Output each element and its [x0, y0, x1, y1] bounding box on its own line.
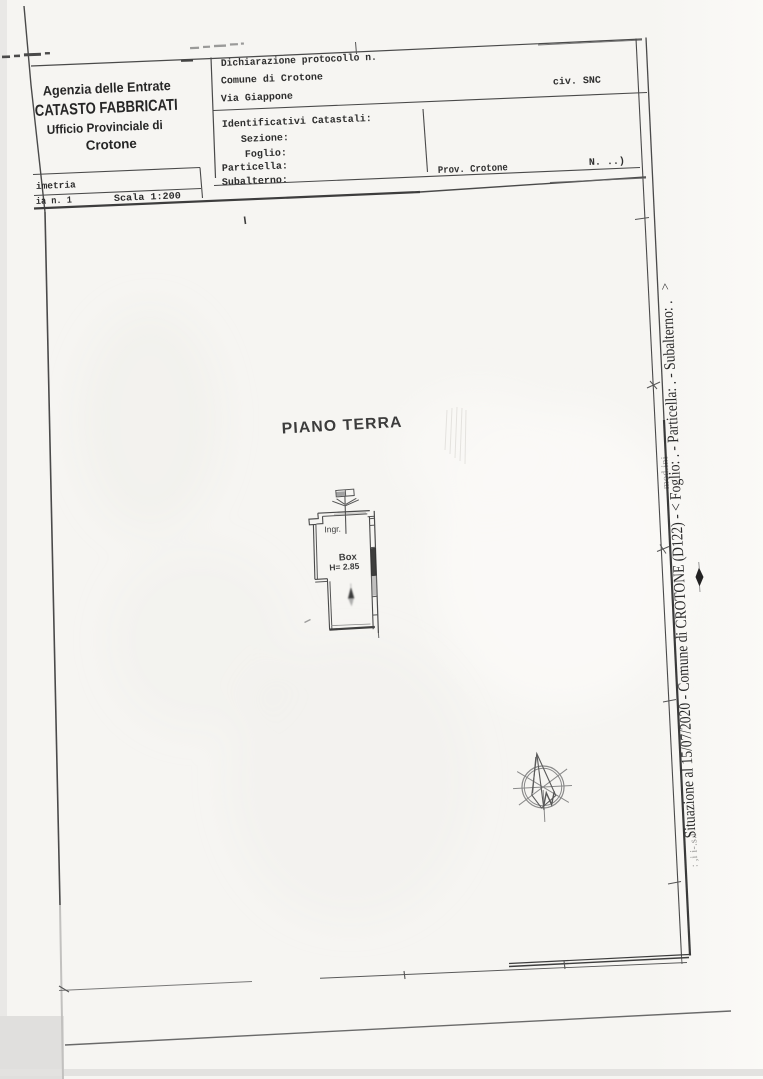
svg-text:imetria: imetria — [36, 179, 77, 192]
svg-text:Foglio:: Foglio: — [245, 147, 287, 161]
svg-text:civ. SNC: civ. SNC — [553, 75, 601, 89]
svg-text:N. ..): N. ..) — [589, 156, 625, 169]
svg-text:Crotone: Crotone — [85, 136, 137, 153]
svg-text:Ingr.: Ingr. — [324, 524, 341, 535]
svg-text:>: > — [657, 283, 672, 291]
svg-text:Sezione:: Sezione: — [241, 132, 289, 146]
svg-text:H= 2.85: H= 2.85 — [329, 561, 360, 573]
svg-text:ia n. 1: ia n. 1 — [36, 195, 73, 207]
svg-text:mod.ini: mod.ini — [660, 456, 672, 489]
